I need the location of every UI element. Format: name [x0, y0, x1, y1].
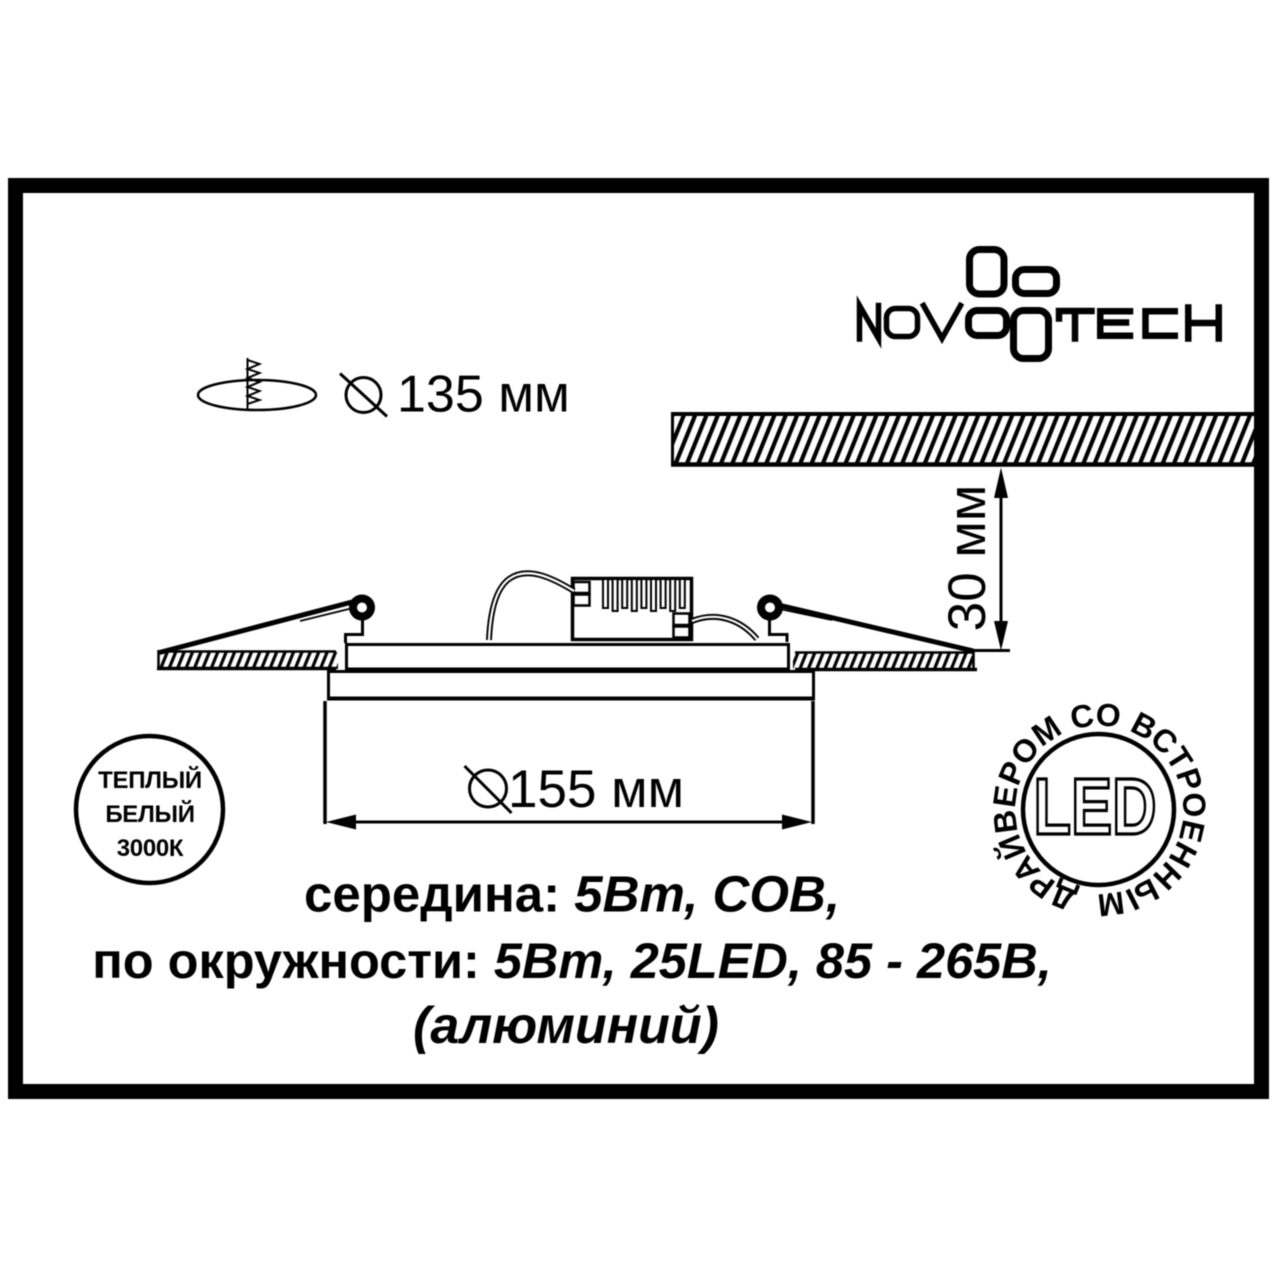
svg-text:155 мм: 155 мм	[508, 760, 684, 819]
svg-text:(алюминий): (алюминий)	[413, 997, 719, 1055]
svg-text:135 мм: 135 мм	[397, 366, 570, 424]
svg-text:LED: LED	[1034, 762, 1157, 851]
svg-text:3000К: 3000К	[117, 835, 184, 862]
svg-text:30 мм: 30 мм	[938, 485, 997, 632]
svg-text:середина: 5Вт, СОВ,: середина: 5Вт, СОВ,	[304, 866, 840, 923]
svg-text:БЕЛЫЙ: БЕЛЫЙ	[105, 800, 194, 828]
svg-text:по окружности: 5Вт, 25LED, 85: по окружности: 5Вт, 25LED, 85 - 265В,	[92, 932, 1052, 989]
svg-text:ТЕПЛЫЙ: ТЕПЛЫЙ	[98, 766, 202, 794]
